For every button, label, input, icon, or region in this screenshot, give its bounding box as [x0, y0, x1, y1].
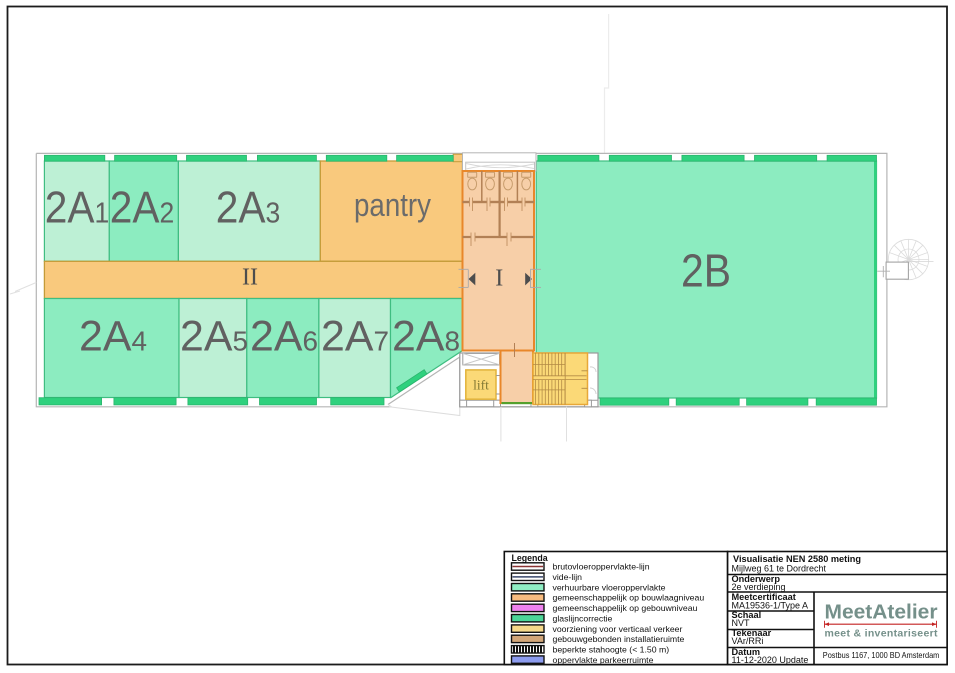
svg-text:vide-lijn: vide-lijn	[553, 572, 583, 582]
svg-text:Legenda: Legenda	[512, 553, 548, 563]
svg-text:VAr/RRi: VAr/RRi	[732, 636, 764, 646]
svg-text:brutovloeroppervlakte-lijn: brutovloeroppervlakte-lijn	[553, 562, 650, 572]
svg-text:2B: 2B	[681, 245, 731, 297]
svg-text:Mijlweg 61 te Dordrecht: Mijlweg 61 te Dordrecht	[732, 563, 827, 573]
svg-text:glaslijncorrectie: glaslijncorrectie	[553, 613, 613, 623]
svg-text:NVT: NVT	[732, 618, 751, 628]
svg-text:gemeenschappelijk op gebouwniv: gemeenschappelijk op gebouwniveau	[553, 603, 698, 613]
svg-text:2e verdieping: 2e verdieping	[732, 582, 786, 592]
svg-text:voorziening voor verticaal ver: voorziening voor verticaal verkeer	[553, 624, 683, 634]
svg-text:oppervlakte parkeerruimte: oppervlakte parkeerruimte	[553, 655, 654, 665]
svg-text:gebouwgebonden installatieruim: gebouwgebonden installatieruimte	[553, 634, 685, 644]
svg-text:lift: lift	[473, 378, 489, 393]
svg-text:11-12-2020 Update: 11-12-2020 Update	[732, 655, 809, 665]
svg-text:verhuurbare vloeroppervlakte: verhuurbare vloeroppervlakte	[553, 582, 666, 592]
svg-text:I: I	[495, 265, 503, 291]
svg-text:MA19536-1/Type A: MA19536-1/Type A	[732, 600, 809, 610]
svg-text:gemeenschappelijk op bouwlaagn: gemeenschappelijk op bouwlaagniveau	[553, 593, 705, 603]
svg-text:Visualisatie NEN 2580 meting: Visualisatie NEN 2580 meting	[733, 554, 861, 564]
svg-text:pantry: pantry	[354, 187, 431, 223]
svg-text:beperkte stahoogte (< 1.50 m): beperkte stahoogte (< 1.50 m)	[553, 645, 670, 655]
svg-text:Postbus 1167, 1000 BD Amsterda: Postbus 1167, 1000 BD Amsterdam	[823, 651, 940, 660]
svg-text:MeetAtelier: MeetAtelier	[825, 601, 938, 624]
svg-text:II: II	[242, 265, 258, 291]
svg-text:meet & inventariseert: meet & inventariseert	[825, 627, 939, 639]
